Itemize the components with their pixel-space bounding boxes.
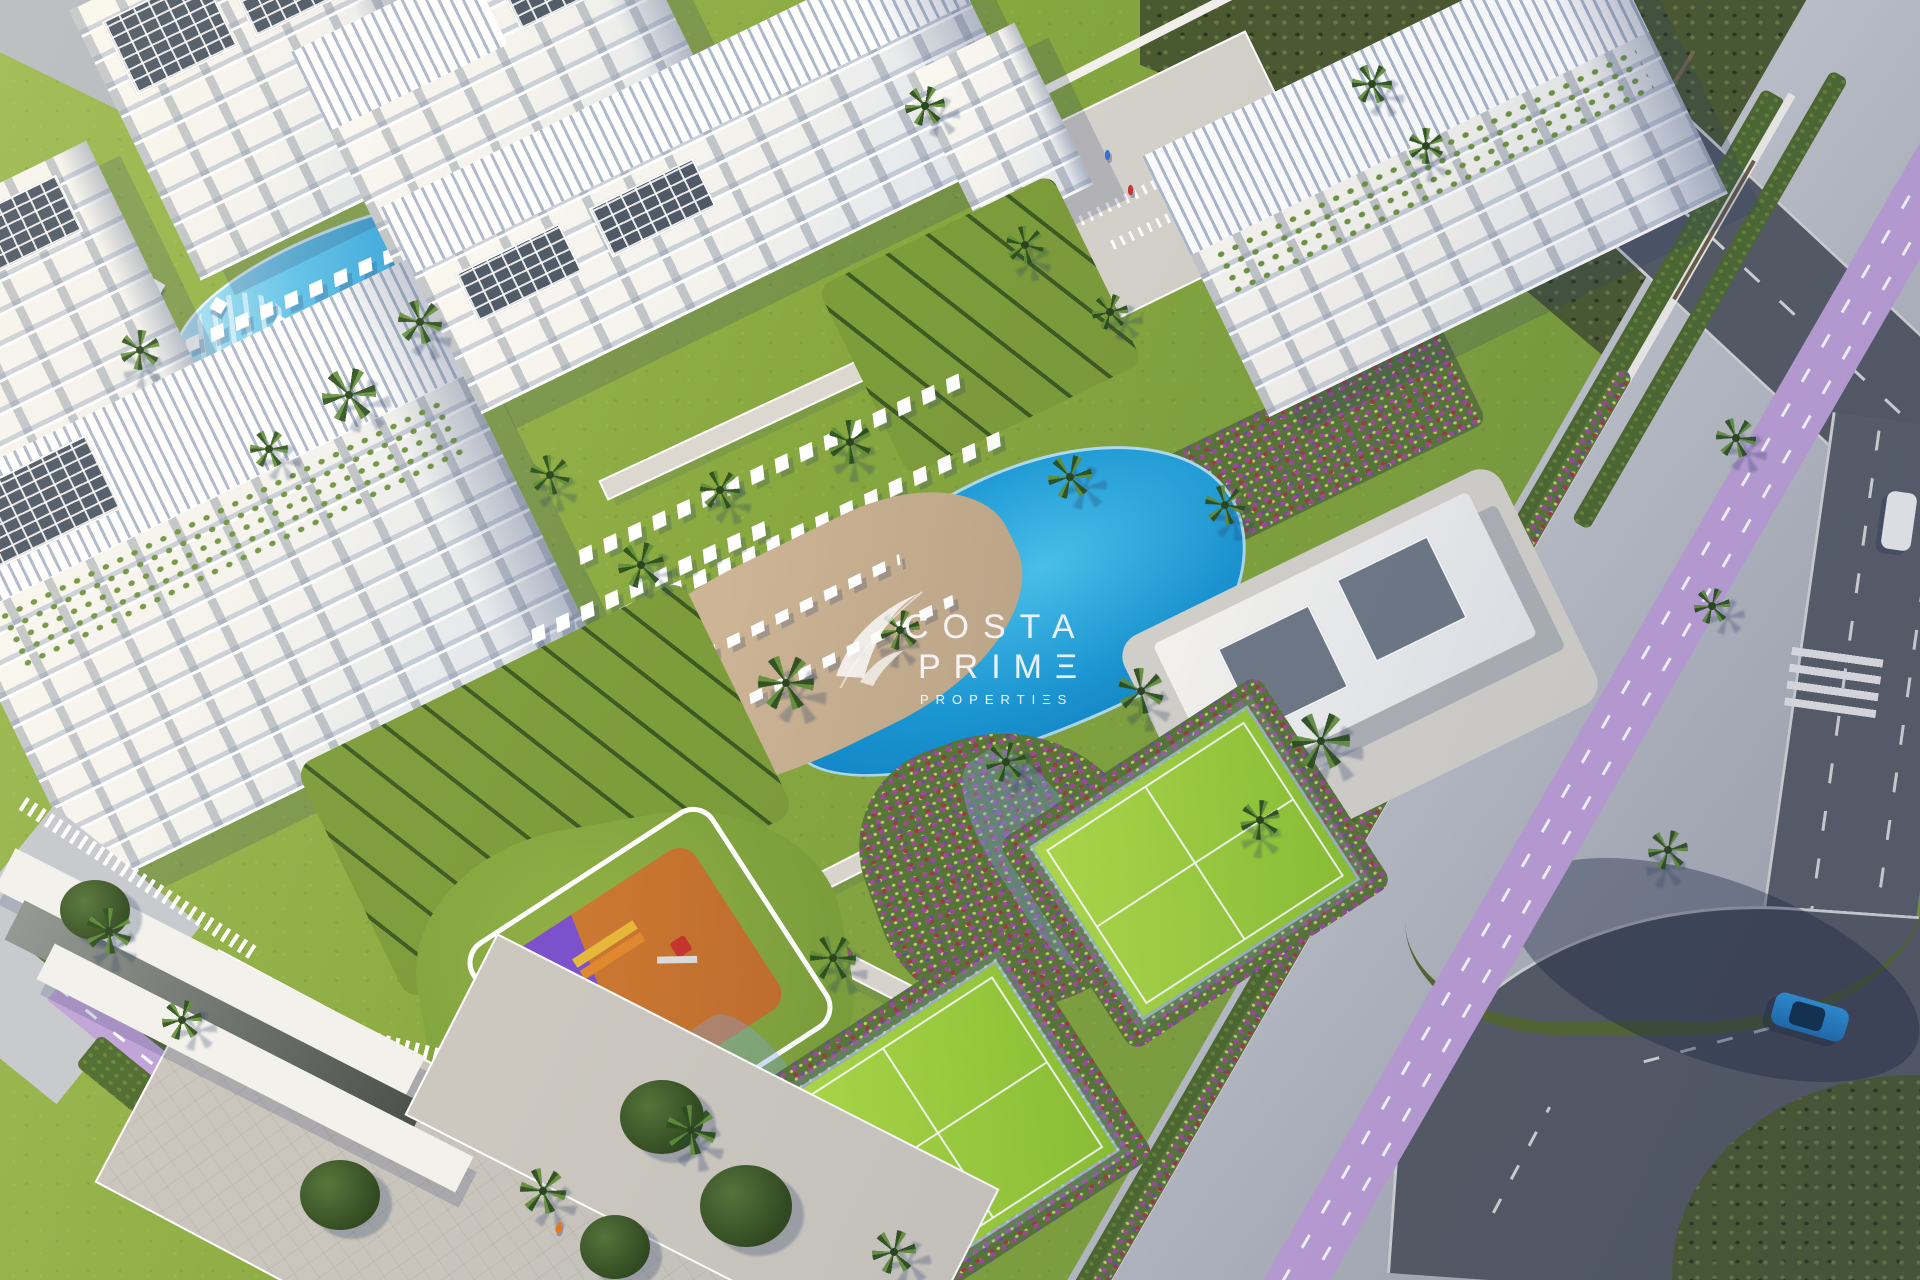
palm-tree [1694,588,1730,624]
slide [657,956,697,964]
tree [580,1215,650,1279]
tree [300,1160,380,1230]
palm-tree [322,368,376,422]
palm-tree [162,1000,202,1040]
palm-tree [523,448,578,503]
car-roof-glass [1787,1000,1826,1032]
roof-panel [1335,536,1467,663]
brand-line-2: PRIMΞ [918,648,1090,687]
aerial-render-scene: COSTA PRIMΞ PROPERTIΞS [0,0,1920,1280]
person [1105,150,1110,160]
rooftop-solar-panels [492,0,628,31]
watermark: COSTA PRIMΞ PROPERTIΞS [830,582,1130,722]
slide-tower [669,935,693,959]
crosswalk [1784,644,1884,718]
rooftop-solar-panels [102,0,239,96]
palm-tree [1048,455,1092,499]
tree [700,1165,792,1247]
palm-tree [905,86,945,126]
palm-tree [872,1230,916,1274]
brand-line-3: PROPERTIΞS [920,692,1073,707]
rooftop-solar-panels [0,174,83,303]
person [1128,185,1133,195]
palm-tree [618,542,664,588]
palm-tree [986,742,1026,782]
rooftop-solar-panels [225,0,340,38]
brand-line-1: COSTA [904,608,1089,647]
palm-tree [1092,294,1128,330]
